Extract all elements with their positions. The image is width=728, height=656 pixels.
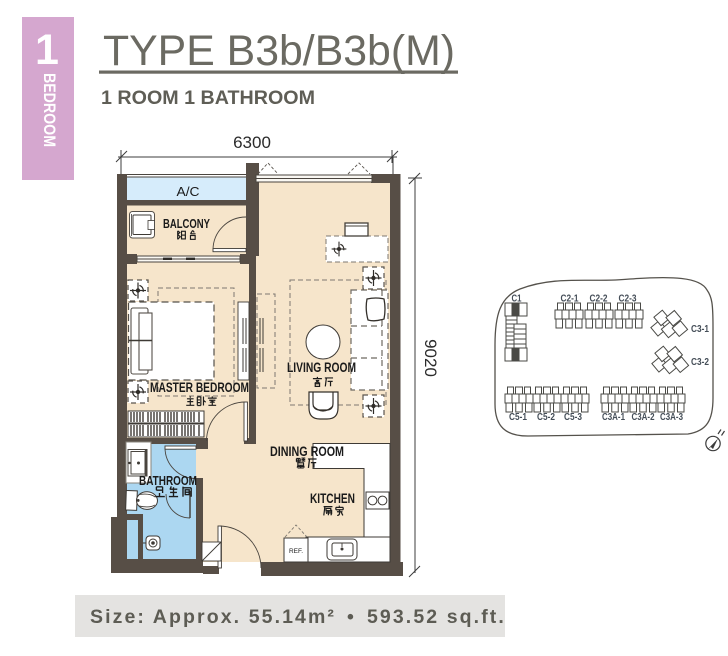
svg-text:C5-2: C5-2 bbox=[537, 412, 555, 423]
svg-text:KITCHEN: KITCHEN bbox=[310, 491, 355, 506]
svg-text:A/C: A/C bbox=[177, 184, 200, 199]
svg-text:DINING ROOM: DINING ROOM bbox=[270, 444, 344, 459]
svg-text:C3A-2: C3A-2 bbox=[632, 412, 655, 423]
svg-text:REF.: REF. bbox=[289, 548, 303, 555]
svg-text:C1: C1 bbox=[512, 294, 522, 305]
svg-text:C3A-1: C3A-1 bbox=[602, 412, 625, 423]
svg-text:C2-3: C2-3 bbox=[619, 294, 637, 305]
svg-text:TYPE B3b/B3b(M): TYPE B3b/B3b(M) bbox=[103, 27, 455, 75]
svg-text:1: 1 bbox=[35, 26, 59, 74]
svg-text:BATHROOM: BATHROOM bbox=[139, 473, 197, 488]
svg-text:BALCONY: BALCONY bbox=[163, 216, 210, 231]
svg-text:9020: 9020 bbox=[421, 339, 440, 377]
svg-text:Size: Approx. 55.14m²•593.52 s: Size: Approx. 55.14m²•593.52 sq.ft. bbox=[90, 606, 506, 628]
svg-text:1 ROOM 1 BATHROOM: 1 ROOM 1 BATHROOM bbox=[101, 87, 315, 109]
svg-text:C2-1: C2-1 bbox=[561, 294, 579, 305]
svg-text:BEDROOM: BEDROOM bbox=[40, 73, 59, 147]
svg-text:C5-1: C5-1 bbox=[509, 412, 527, 423]
svg-text:C3A-3: C3A-3 bbox=[660, 412, 683, 423]
svg-text:LIVING ROOM: LIVING ROOM bbox=[287, 360, 356, 375]
svg-text:6300: 6300 bbox=[233, 133, 271, 152]
svg-text:C2-2: C2-2 bbox=[590, 294, 608, 305]
svg-text:C3-1: C3-1 bbox=[691, 324, 709, 335]
svg-text:C3-2: C3-2 bbox=[691, 357, 709, 368]
svg-text:C5-3: C5-3 bbox=[564, 412, 582, 423]
svg-text:MASTER BEDROOM: MASTER BEDROOM bbox=[150, 380, 249, 395]
